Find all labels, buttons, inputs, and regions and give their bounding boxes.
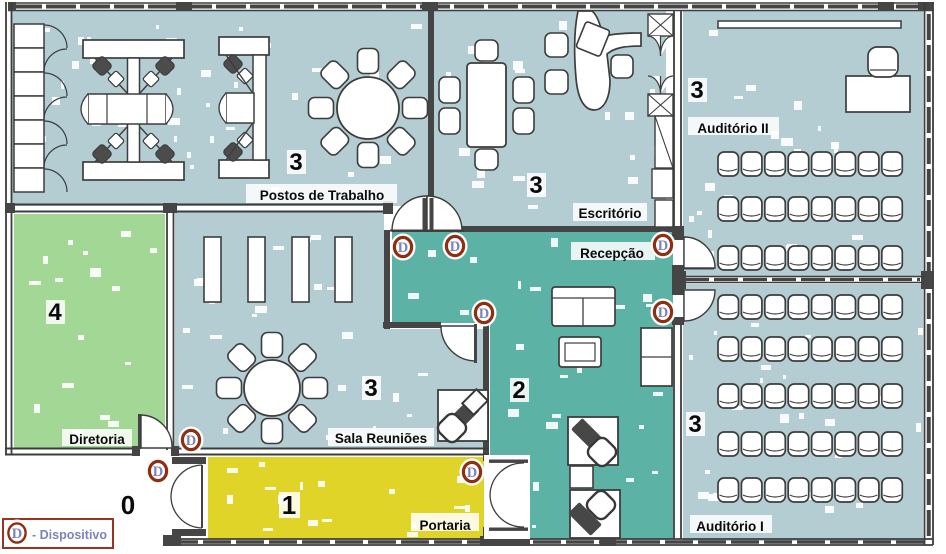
svg-text:Postos de Trabalho: Postos de Trabalho xyxy=(260,188,385,203)
svg-text:1: 1 xyxy=(282,490,296,520)
svg-text:D: D xyxy=(186,433,196,449)
svg-text:3: 3 xyxy=(529,172,542,199)
svg-text:Auditório I: Auditório I xyxy=(696,519,764,534)
svg-text:D: D xyxy=(450,239,460,255)
svg-text:3: 3 xyxy=(690,77,703,104)
svg-text:2: 2 xyxy=(512,377,525,404)
svg-text:3: 3 xyxy=(688,411,701,438)
svg-text:D: D xyxy=(153,464,163,480)
svg-text:D: D xyxy=(658,238,668,254)
svg-text:- Dispositivo: - Dispositivo xyxy=(32,528,107,542)
svg-text:Portaria: Portaria xyxy=(419,518,471,533)
svg-text:D: D xyxy=(467,465,477,481)
svg-text:0: 0 xyxy=(121,490,135,520)
svg-text:Sala Reuniões: Sala Reuniões xyxy=(335,431,427,446)
svg-text:3: 3 xyxy=(289,149,302,176)
svg-text:Diretoria: Diretoria xyxy=(69,432,125,447)
svg-text:D: D xyxy=(479,306,489,322)
svg-text:Escritório: Escritório xyxy=(578,206,641,221)
svg-text:D: D xyxy=(658,305,668,321)
svg-text:D: D xyxy=(398,240,408,256)
svg-text:Recepção: Recepção xyxy=(580,246,644,261)
svg-text:D: D xyxy=(12,526,22,542)
svg-text:4: 4 xyxy=(48,299,62,326)
svg-text:3: 3 xyxy=(364,375,377,402)
svg-text:Auditório II: Auditório II xyxy=(697,121,768,136)
